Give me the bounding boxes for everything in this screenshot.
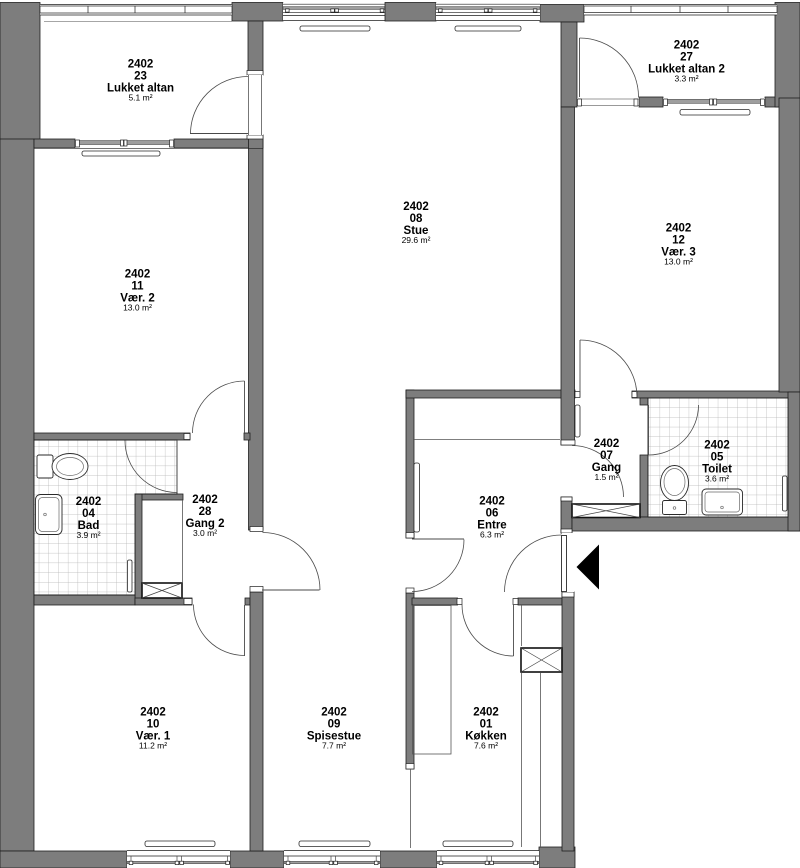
- svg-text:7.7 m²: 7.7 m²: [322, 741, 346, 751]
- svg-text:3.3 m²: 3.3 m²: [674, 74, 698, 84]
- svg-text:27: 27: [680, 52, 693, 64]
- svg-text:3.0 m²: 3.0 m²: [193, 528, 217, 538]
- svg-text:3.9 m²: 3.9 m²: [76, 530, 100, 540]
- svg-text:11: 11: [131, 281, 144, 293]
- svg-text:29.6 m²: 29.6 m²: [402, 235, 431, 245]
- svg-text:5.1 m²: 5.1 m²: [128, 93, 152, 103]
- svg-text:6.3 m²: 6.3 m²: [480, 530, 504, 540]
- svg-text:2402: 2402: [321, 707, 347, 719]
- svg-text:2402: 2402: [674, 40, 700, 52]
- svg-text:10: 10: [147, 719, 160, 731]
- svg-text:2402: 2402: [479, 496, 505, 508]
- svg-text:2402: 2402: [128, 59, 154, 71]
- svg-text:23: 23: [134, 71, 147, 83]
- svg-text:2402: 2402: [76, 496, 102, 508]
- svg-text:2402: 2402: [192, 494, 218, 506]
- svg-text:11.2 m²: 11.2 m²: [139, 741, 167, 751]
- svg-text:07: 07: [600, 450, 613, 462]
- svg-text:1.5 m²: 1.5 m²: [594, 472, 618, 482]
- svg-text:06: 06: [486, 508, 499, 520]
- svg-text:13.0 m²: 13.0 m²: [123, 303, 152, 313]
- svg-text:2402: 2402: [403, 201, 429, 213]
- svg-text:13.0 m²: 13.0 m²: [664, 257, 693, 267]
- svg-text:2402: 2402: [125, 269, 151, 281]
- svg-text:04: 04: [82, 508, 95, 520]
- svg-text:2402: 2402: [666, 223, 692, 235]
- svg-text:05: 05: [711, 452, 724, 464]
- svg-text:7.6 m²: 7.6 m²: [474, 741, 498, 751]
- svg-text:01: 01: [480, 719, 493, 731]
- svg-text:09: 09: [328, 719, 341, 731]
- svg-text:2402: 2402: [140, 707, 166, 719]
- svg-text:28: 28: [199, 506, 212, 518]
- svg-text:12: 12: [672, 235, 685, 247]
- svg-text:2402: 2402: [594, 438, 620, 450]
- svg-text:08: 08: [410, 213, 423, 225]
- svg-text:2402: 2402: [704, 440, 730, 452]
- svg-text:3.6 m²: 3.6 m²: [705, 474, 729, 484]
- svg-text:2402: 2402: [473, 707, 499, 719]
